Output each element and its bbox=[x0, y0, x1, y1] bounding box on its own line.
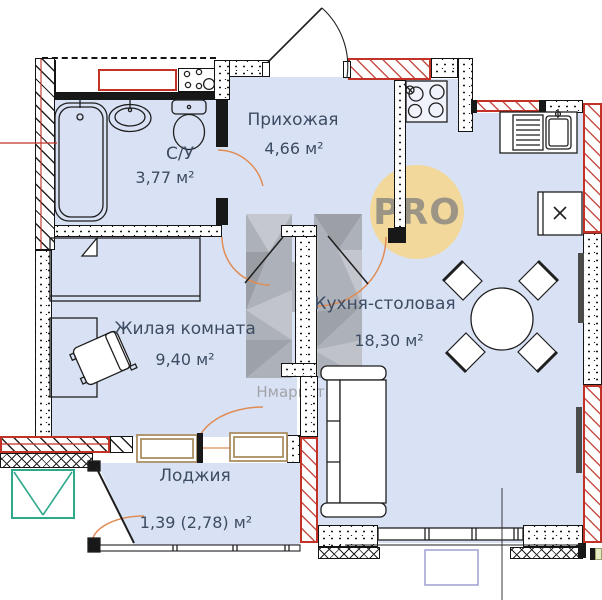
shaft-symbol bbox=[12, 470, 74, 518]
balcony-door-jamb bbox=[197, 433, 203, 463]
kitchen-sink-icon bbox=[500, 109, 577, 153]
stove-icon bbox=[404, 81, 447, 122]
room-area-living: 9,40 м² bbox=[125, 352, 245, 369]
opening-marks bbox=[245, 236, 368, 284]
room-area-loggia: 1,39 (2,78) м² bbox=[111, 515, 281, 532]
bed-icon bbox=[50, 238, 200, 301]
radiator-bars bbox=[576, 253, 584, 473]
entry-door bbox=[268, 8, 348, 77]
room-label-loggia: Лоджия bbox=[135, 468, 255, 486]
floor-plan: PRO Нмаркет.ПРО bbox=[0, 0, 602, 600]
room-area-hallway: 4,66 м² bbox=[234, 141, 354, 158]
room-area-kitchen: 18,30 м² bbox=[329, 333, 449, 350]
toilet-icon bbox=[172, 100, 206, 150]
sofa-icon bbox=[321, 366, 386, 517]
bathtub-icon bbox=[55, 96, 107, 221]
appliance-box-icon bbox=[538, 192, 582, 235]
sink-icon bbox=[109, 97, 151, 132]
room-area-bathroom: 3,77 м² bbox=[105, 170, 225, 187]
ac-basket bbox=[425, 550, 478, 585]
vent-holes-icon bbox=[184, 69, 214, 89]
room-label-kitchen: Кухня-столовая bbox=[295, 296, 475, 314]
room-label-bathroom: С/У bbox=[130, 146, 230, 164]
chair-icon bbox=[519, 261, 558, 300]
room-label-hallway: Прихожая bbox=[233, 112, 353, 130]
dining-set-icon bbox=[443, 261, 558, 372]
room-label-living: Жилая комната bbox=[100, 321, 270, 339]
kitchen-window bbox=[345, 528, 583, 545]
